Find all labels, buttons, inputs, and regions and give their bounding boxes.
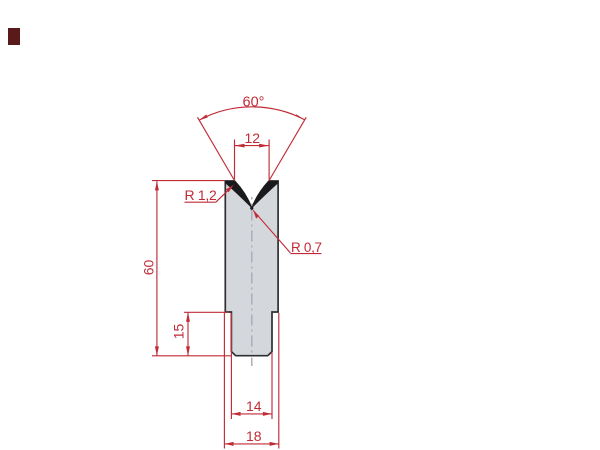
svg-text:R 1,2: R 1,2 xyxy=(185,187,217,203)
svg-text:15: 15 xyxy=(171,324,187,340)
svg-text:60°: 60° xyxy=(243,95,265,111)
svg-text:R 0,7: R 0,7 xyxy=(291,240,322,255)
svg-text:18: 18 xyxy=(246,428,262,444)
svg-text:14: 14 xyxy=(246,398,262,414)
svg-text:60: 60 xyxy=(141,260,157,276)
svg-text:12: 12 xyxy=(245,130,261,146)
